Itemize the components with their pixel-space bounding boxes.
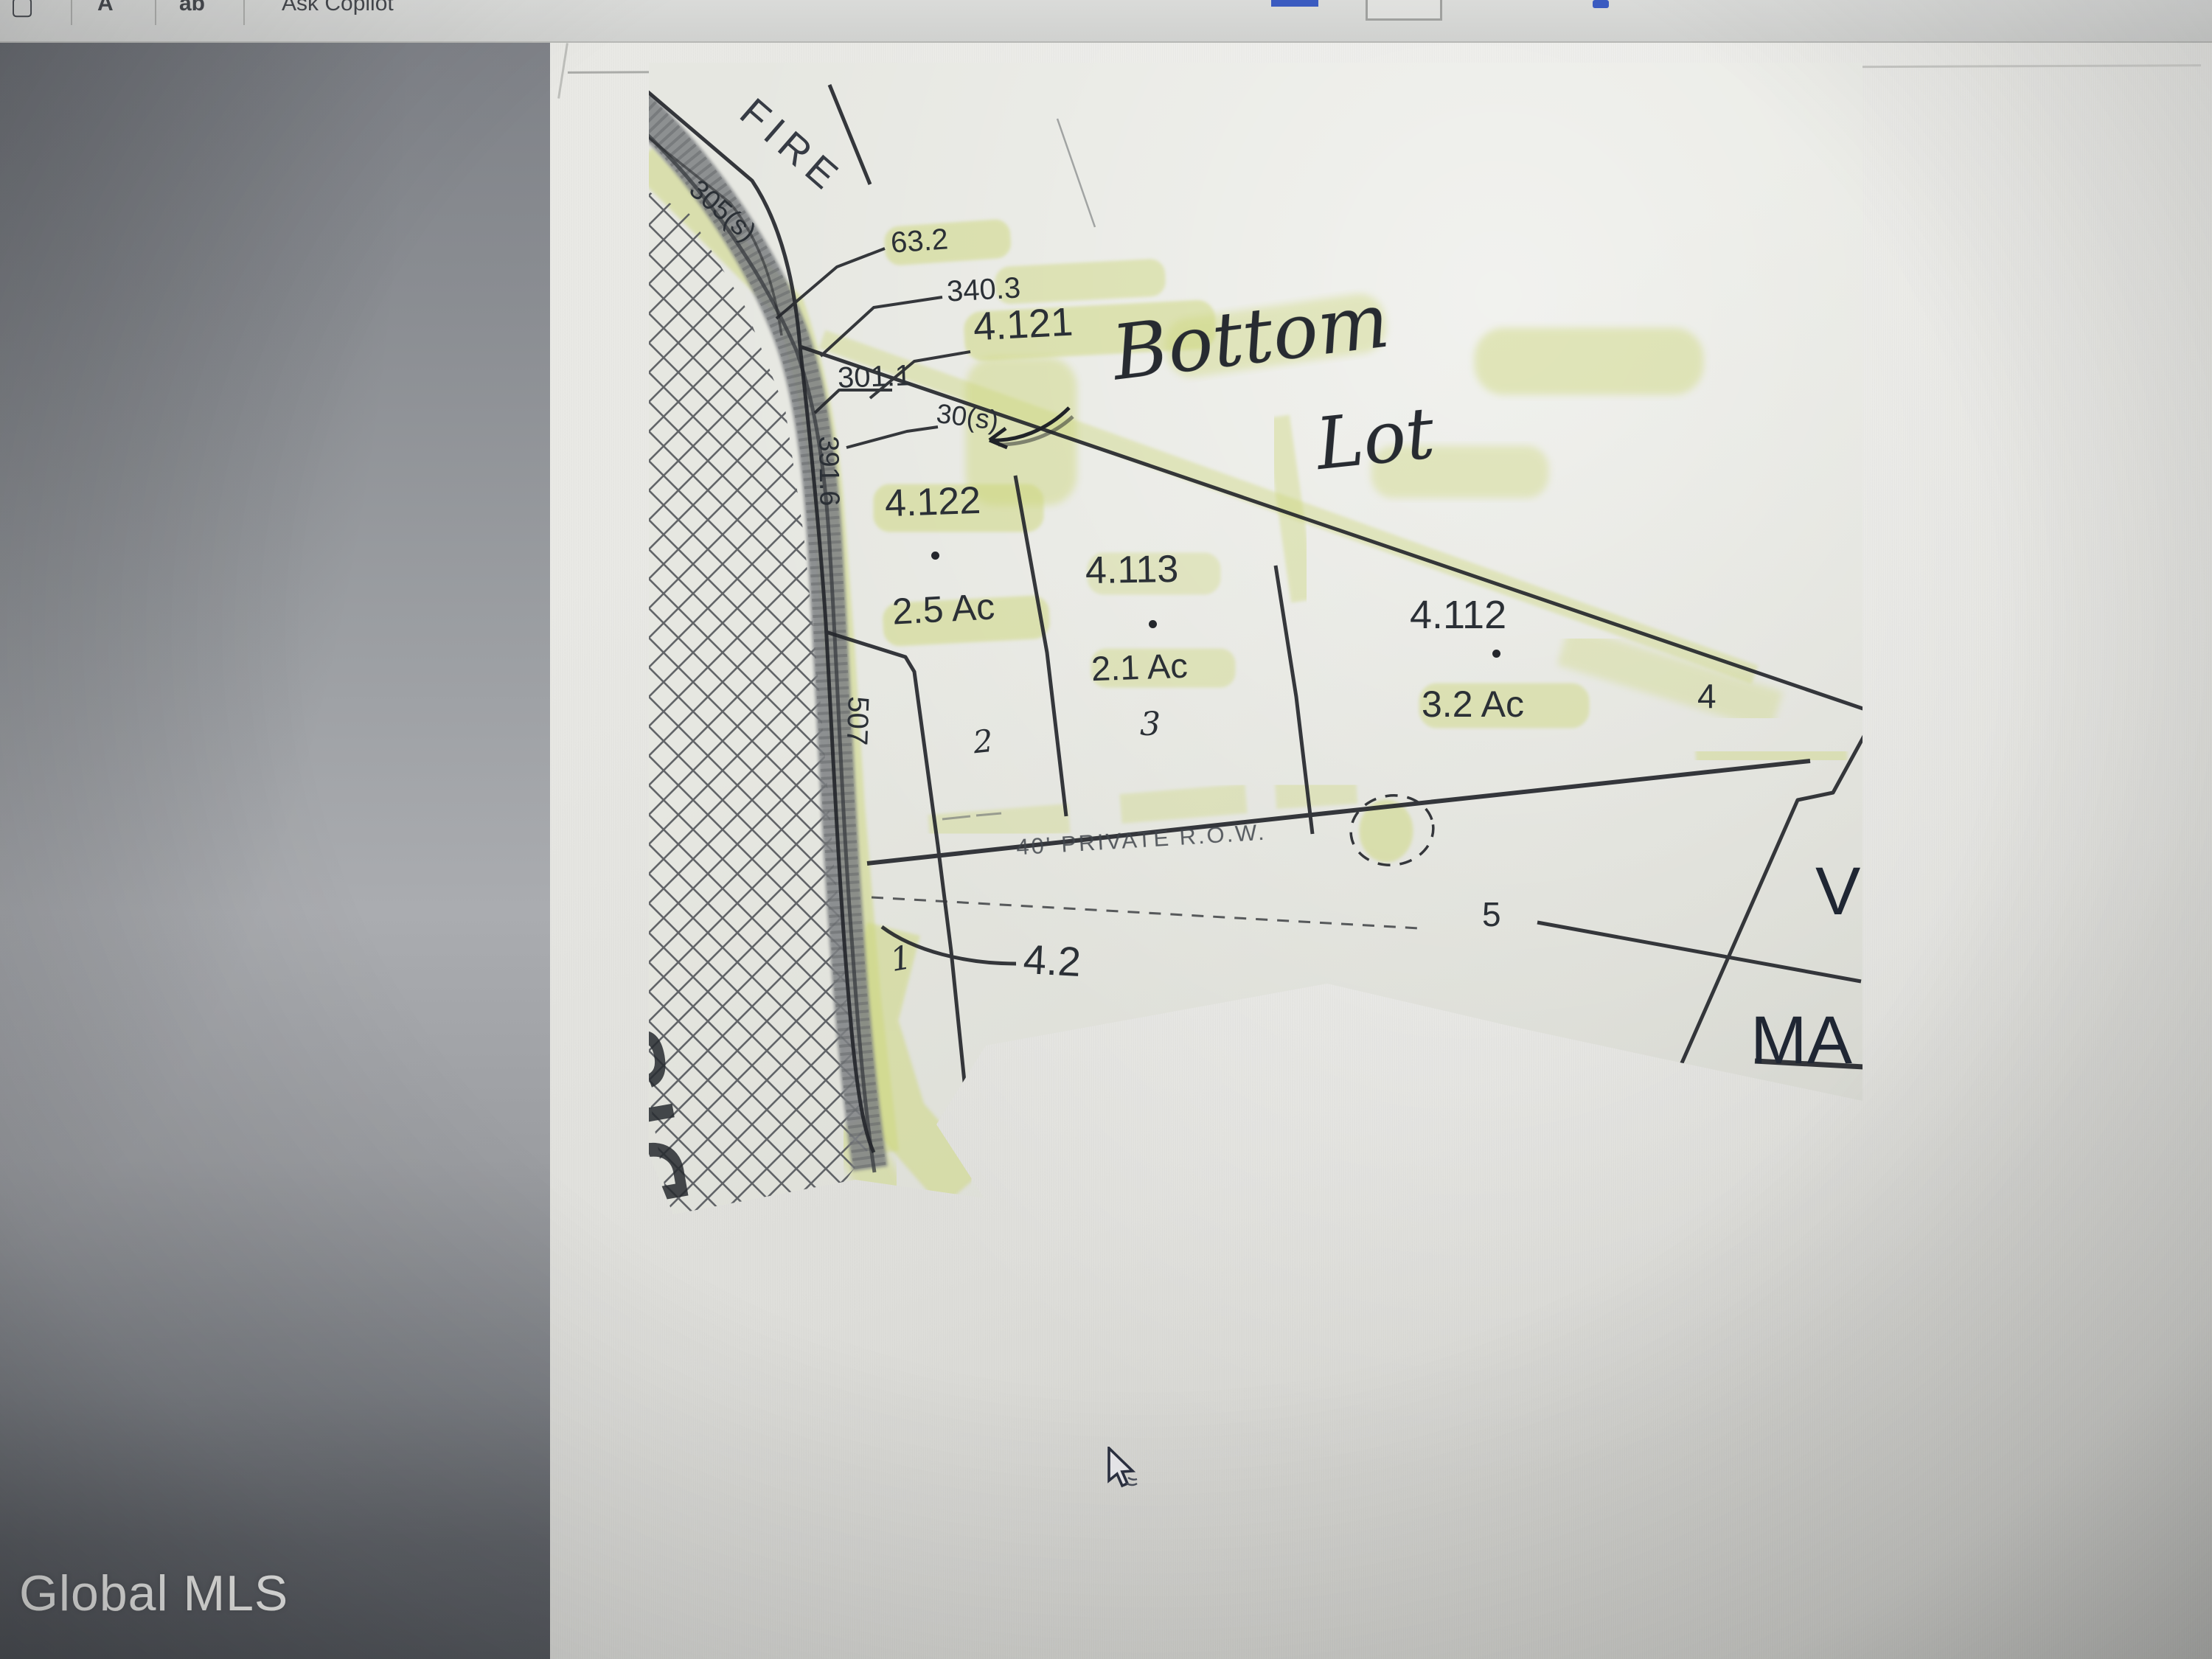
- ask-copilot-button[interactable]: Ask Copilot: [282, 0, 394, 16]
- toolbar-partial-icon[interactable]: [1271, 0, 1318, 7]
- partial-right-v: V: [1815, 858, 1860, 925]
- text-size-icon[interactable]: A: [97, 0, 114, 16]
- area-4112-label: 3.2 Ac: [1422, 686, 1524, 723]
- parcel-4122-label: 4.122: [884, 481, 981, 524]
- screen-photo: ▢ A ab Ask Copilot: [0, 0, 2212, 1659]
- dim-391-6: 391.6: [814, 436, 844, 507]
- app-background-left: [0, 0, 550, 1659]
- page-view-icon[interactable]: ▢: [10, 0, 34, 21]
- global-mls-watermark: Global MLS: [19, 1565, 288, 1622]
- parcel-42-label: 4.2: [1023, 939, 1082, 983]
- partial-right-ma: MA: [1750, 1006, 1852, 1074]
- parcel-4113-label: 4.113: [1085, 550, 1179, 590]
- mouse-cursor: [1107, 1447, 1146, 1494]
- read-aloud-icon[interactable]: ab: [179, 0, 205, 16]
- dim-63-2: 63.2: [890, 224, 949, 257]
- screenshot-icon[interactable]: [1366, 0, 1442, 21]
- lot-2-label: 2: [972, 726, 995, 759]
- parcel-4121-label: 4.121: [973, 302, 1074, 347]
- dim-30s: 30(s): [935, 400, 1000, 434]
- parcel-4113-dot: [1149, 620, 1157, 628]
- area-4113-label: 2.1 Ac: [1091, 648, 1188, 686]
- lot-3-label: 3: [1140, 709, 1161, 741]
- lot-5-label: 5: [1482, 897, 1501, 931]
- parcel-4112-label: 4.112: [1410, 595, 1506, 635]
- toolbar-separator: [243, 0, 245, 25]
- handwriting-lot: Lot: [1312, 397, 1437, 480]
- lot-4-label: 4: [1697, 679, 1717, 713]
- toolbar-separator: [155, 0, 156, 25]
- parcel-4112-dot: [1492, 650, 1500, 658]
- dim-507: 507: [842, 696, 873, 746]
- browser-toolbar: ▢ A ab Ask Copilot: [0, 0, 2212, 43]
- toolbar-separator: [71, 0, 72, 25]
- area-4122-label: 2.5 Ac: [891, 588, 995, 630]
- parcel-4122-dot: [931, 552, 939, 560]
- toolbar-partial-icon[interactable]: [1593, 0, 1609, 8]
- dim-340-3: 340.3: [946, 273, 1021, 306]
- dim-301-1: 301.1: [837, 361, 911, 392]
